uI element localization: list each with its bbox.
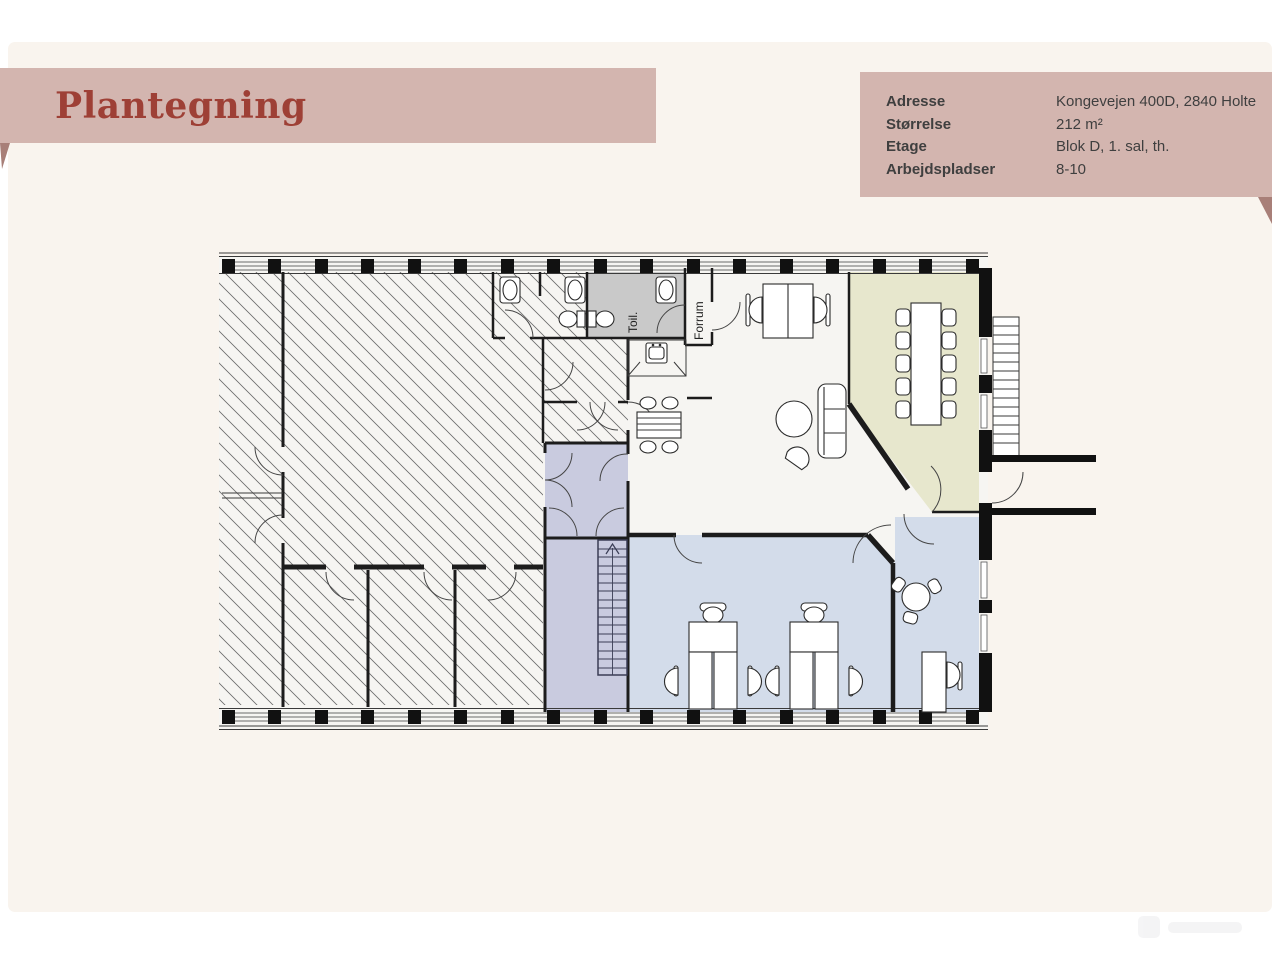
conference-table <box>896 303 956 425</box>
floor-plan-svg: Toil. Forrum <box>180 240 1100 740</box>
info-label: Adresse <box>886 91 1056 114</box>
info-value: 8-10 <box>1056 159 1086 182</box>
watermark <box>1138 916 1246 940</box>
watermark-logo-icon <box>1138 916 1160 938</box>
floor-plan: Toil. Forrum <box>180 240 1100 740</box>
exterior-staircase <box>985 317 1096 515</box>
info-label: Etage <box>886 136 1056 159</box>
info-value: Blok D, 1. sal, th. <box>1056 136 1169 159</box>
title-banner: Plantegning <box>0 68 656 143</box>
label-toilet: Toil. <box>626 312 640 333</box>
page-title: Plantegning <box>55 85 307 127</box>
info-row-etage: Etage Blok D, 1. sal, th. <box>886 136 1272 159</box>
info-value: 212 m² <box>1056 114 1103 137</box>
info-row-adresse: Adresse Kongevejen 400D, 2840 Holte <box>886 91 1272 114</box>
info-label: Arbejdspladser <box>886 159 1056 182</box>
info-label: Størrelse <box>886 114 1056 137</box>
info-panel: Adresse Kongevejen 400D, 2840 Holte Stør… <box>860 72 1272 197</box>
label-forrum: Forrum <box>692 301 706 340</box>
watermark-text-shape <box>1168 922 1242 933</box>
info-row-stoerrelse: Størrelse 212 m² <box>886 114 1272 137</box>
info-row-arbejdspladser: Arbejdspladser 8-10 <box>886 159 1272 182</box>
info-value: Kongevejen 400D, 2840 Holte <box>1056 91 1256 114</box>
